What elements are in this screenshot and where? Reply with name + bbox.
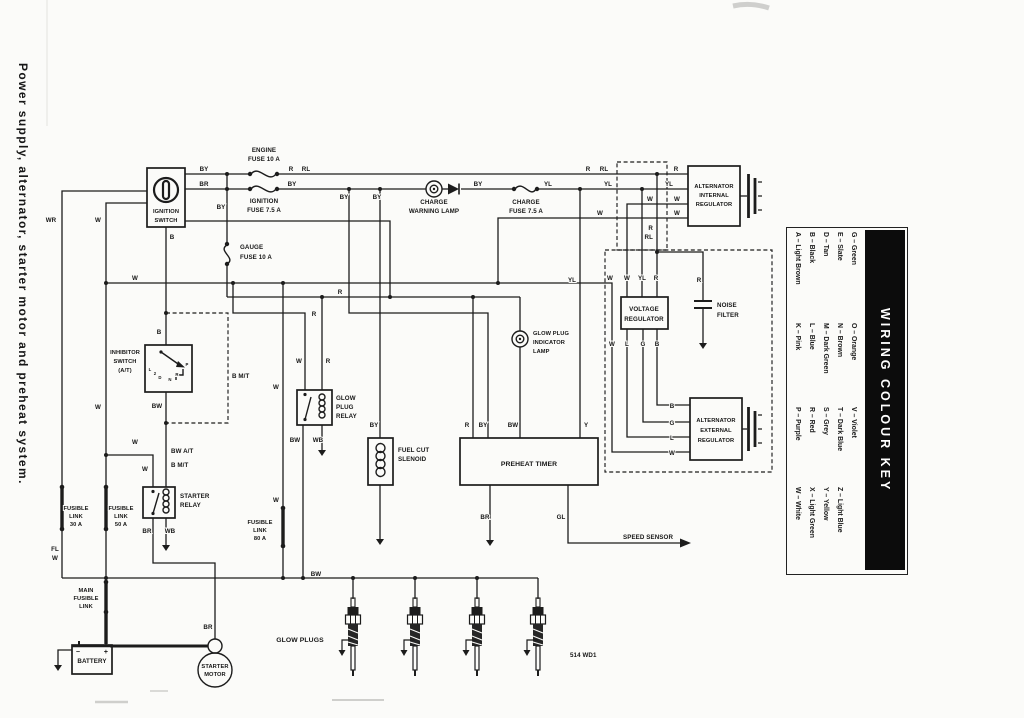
wire-label: RL [302, 166, 311, 173]
wire-label: B [655, 341, 660, 348]
wire-label: BW [290, 437, 301, 444]
starter-relay-internals [151, 489, 169, 515]
wire-label: YL [544, 181, 552, 188]
diagram-code: 514 WD1 [570, 652, 597, 659]
wire-label: W [95, 404, 101, 411]
colour-key-entry: O – Orange [846, 323, 860, 404]
gear-position: P [186, 362, 189, 367]
wire-label: W [142, 466, 148, 473]
wire-label: W [607, 275, 613, 282]
label-inhibitor-switch: (A/T) [118, 368, 131, 374]
wire-label: W [52, 555, 58, 562]
alternator-icon-external [749, 407, 763, 451]
colour-key-entry: E – Slate [832, 232, 846, 320]
gear-position: D [158, 375, 161, 380]
wire-label: B M/T [171, 462, 188, 469]
label-fusible-link-30: FUSIBLE [63, 506, 88, 512]
wire-label: R [697, 277, 702, 284]
wire-label: W [132, 439, 138, 446]
label-starter-motor: STARTER [201, 664, 228, 670]
glow-plugs-group [339, 578, 546, 676]
wire-label: B M/T [232, 373, 249, 380]
label-fusible-link-50: 50 A [115, 522, 127, 528]
wire-label: R [648, 225, 653, 232]
glow-plug [463, 578, 485, 676]
label-glow-plugs: GLOW PLUGS [276, 637, 324, 644]
alternator-icon-internal [749, 174, 763, 218]
wire-label: W [674, 210, 680, 217]
label-preheat-timer: PREHEAT TIMER [501, 461, 557, 468]
label-ignition-switch: SWITCH [154, 218, 177, 224]
wire-label: W [669, 450, 675, 457]
label-ignition-fuse: IGNITION [250, 198, 279, 205]
label-voltage-regulator: REGULATOR [624, 316, 664, 323]
colour-key-entry: W – White [790, 487, 804, 573]
colour-key-entry: D – Tan [818, 232, 832, 320]
scanned-wiring-diagram-page: Power supply, alternator, starter motor … [0, 0, 1024, 718]
wire-label: BY [340, 194, 350, 201]
gear-position: L [149, 367, 152, 372]
wire-label: BY [479, 422, 489, 429]
label-engine-fuse: FUSE 10 A [248, 156, 280, 163]
wire-label: W [296, 358, 302, 365]
label-fusible-link-30: 30 A [70, 522, 82, 528]
wire-label: W [647, 196, 653, 203]
battery-minus: − [76, 649, 80, 656]
colour-key-entry: L – Blue [804, 323, 818, 404]
label-glow-plug-relay: GLOW [336, 395, 356, 402]
wire-label: R [465, 422, 470, 429]
label-alt-int-reg: REGULATOR [696, 202, 732, 208]
wire-label: BW [508, 422, 519, 429]
wire-label: B [670, 403, 675, 410]
label-fusible-link-50: FUSIBLE [108, 506, 133, 512]
glow-plug-indicator-lamp-icon [512, 331, 528, 347]
label-glow-plug-indicator-lamp: LAMP [533, 349, 550, 355]
wire-label: Y [584, 422, 589, 429]
inhibitor-switch-internals [159, 350, 185, 380]
wire-label: BW [152, 403, 163, 410]
colour-key-entry: N – Brown [832, 323, 846, 404]
wire-label: W [624, 275, 630, 282]
colour-key-entry: K – Pink [790, 323, 804, 404]
wire-label: R [326, 358, 331, 365]
gear-position: N [168, 377, 171, 382]
label-alt-ext-reg: ALTERNATOR [696, 418, 735, 424]
glow-plug-relay [297, 390, 332, 425]
regulator-dashed-box [605, 250, 772, 472]
label-glow-plug-relay: RELAY [336, 413, 358, 420]
wire-label: W [132, 275, 138, 282]
label-main-fusible-link: MAIN [79, 588, 94, 594]
fuel-cut-solenoid [368, 438, 393, 485]
glow-plug [339, 578, 361, 676]
wire-label: GL [557, 514, 566, 521]
fuel-cut-solenoid-coil [376, 444, 385, 477]
colour-key-title-bar: WIRING COLOUR KEY [865, 230, 905, 570]
glow-plug [401, 578, 423, 676]
label-glow-plug-relay: PLUG [336, 404, 354, 411]
label-gauge-fuse: FUSE 10 A [240, 254, 272, 261]
label-inhibitor-switch: INHIBITOR [110, 350, 140, 356]
label-fusible-link-50: LINK [114, 514, 128, 520]
wire-label: W [273, 497, 279, 504]
colour-key-entry: T – Dark Blue [832, 407, 846, 484]
label-glow-plug-indicator-lamp: INDICATOR [533, 340, 565, 346]
wire-label: BR [480, 514, 490, 521]
glow-plug [524, 578, 546, 676]
wire-label: FL [51, 546, 59, 553]
wire-label: BY [370, 422, 380, 429]
battery-plus: + [104, 649, 108, 656]
wire-label: BW A/T [171, 448, 193, 455]
colour-key-entry: S – Grey [818, 407, 832, 484]
label-charge-warning-lamp: CHARGE [420, 199, 447, 206]
charge-warning-lamp-icon [426, 181, 442, 197]
label-alt-ext-reg: EXTERNAL [700, 428, 732, 434]
wire-label: B [157, 329, 162, 336]
wire-label: BY [373, 194, 383, 201]
colour-key-entry: R – Red [804, 407, 818, 484]
label-fusible-link-80: FUSIBLE [247, 520, 272, 526]
wire-label: W [273, 384, 279, 391]
wire-label: WB [313, 437, 324, 444]
label-charge-fuse: CHARGE [512, 199, 539, 206]
label-alt-int-reg: ALTERNATOR [694, 184, 733, 190]
glow-plug-relay-internals [303, 393, 325, 421]
label-fusible-link-80: LINK [253, 528, 267, 534]
label-charge-fuse: FUSE 7.5 A [509, 208, 543, 215]
wire-label: BR [142, 528, 152, 535]
label-alt-int-reg: INTERNAL [699, 193, 729, 199]
colour-key-entry: Y – Yellow [818, 487, 832, 573]
wire-label: BY [288, 181, 298, 188]
label-fuel-cut-solenoid: SLENOID [398, 456, 427, 463]
colour-key-entry: M – Dark Green [818, 323, 832, 404]
wire-runs [58, 174, 747, 660]
wire-label: R [674, 166, 679, 173]
label-fuel-cut-solenoid: FUEL CUT [398, 447, 429, 454]
label-fusible-link-80: 80 A [254, 536, 266, 542]
wire-label: BY [474, 181, 484, 188]
wire-label: YL [568, 277, 576, 284]
label-starter-relay: STARTER [180, 493, 210, 500]
wire-labels: BY R RL R RL R BR BY BY YL YL YL BY BY B… [46, 166, 702, 631]
wire-label: L [670, 435, 674, 442]
gear-position: 2 [154, 371, 157, 376]
wire-label: R [586, 166, 591, 173]
label-speed-sensor: SPEED SENSOR [623, 534, 673, 541]
label-ignition-fuse: FUSE 7.5 A [247, 207, 281, 214]
label-voltage-regulator: VOLTAGE [629, 306, 659, 313]
colour-key-entry: P – Purple [790, 407, 804, 484]
colour-key-entry: X – Light Green [804, 487, 818, 573]
label-alt-ext-reg: REGULATOR [698, 438, 734, 444]
label-starter-motor: MOTOR [204, 672, 226, 678]
wire-label: G [641, 341, 646, 348]
voltage-regulator [621, 297, 668, 329]
wiring-colour-key: A – Light BrownK – PinkP – PurpleW – Whi… [786, 227, 908, 575]
label-main-fusible-link: LINK [79, 604, 93, 610]
noise-filter-capacitor-icon [694, 301, 712, 308]
wire-label: W [674, 196, 680, 203]
wire-label: BW [311, 571, 322, 578]
label-noise-filter: FILTER [717, 312, 739, 319]
label-inhibitor-switch: SWITCH [113, 359, 136, 365]
wire-label: BY [217, 204, 227, 211]
label-noise-filter: NOISE [717, 302, 737, 309]
label-starter-relay: RELAY [180, 502, 202, 509]
scan-artifacts [47, 0, 769, 702]
colour-key-entry: Z – Light Blue [832, 487, 846, 573]
wire-label: WR [46, 217, 57, 224]
diode-icon [448, 184, 459, 195]
wire-label: R [654, 275, 659, 282]
label-fusible-link-30: LINK [69, 514, 83, 520]
label-charge-warning-lamp: WARNING LAMP [409, 208, 459, 215]
junction-dots [60, 172, 659, 615]
inhibitor-switch [145, 345, 192, 392]
wire-label: R [312, 311, 317, 318]
wire-label: WB [165, 528, 176, 535]
colour-key-entry: B – Black [804, 232, 818, 320]
wire-label: R [338, 289, 343, 296]
speed-sensor-arrow [680, 539, 691, 548]
wire-label: L [625, 341, 629, 348]
wire-label: YL [638, 275, 646, 282]
wire-label: BY [200, 166, 210, 173]
colour-key-entry: V – Violet [846, 407, 860, 484]
starter-relay [143, 487, 175, 518]
label-battery: BATTERY [77, 658, 107, 665]
wire-label: RL [600, 166, 609, 173]
label-ignition-switch: IGNITION [153, 209, 179, 215]
wire-label: YL [604, 181, 612, 188]
wire-label: BR [203, 624, 213, 631]
wire-label: W [609, 341, 615, 348]
wire-label: RL [645, 234, 654, 241]
colour-key-entry: G – Green [846, 232, 860, 320]
wire-label: R [289, 166, 294, 173]
label-main-fusible-link: FUSIBLE [73, 596, 98, 602]
label-glow-plug-indicator-lamp: GLOW PLUG [533, 331, 569, 337]
wire-label: W [597, 210, 603, 217]
wire-label: B [170, 234, 175, 241]
colour-key-title: WIRING COLOUR KEY [878, 308, 892, 492]
wire-label: YL [665, 181, 673, 188]
colour-key-entry: A – Light Brown [790, 232, 804, 320]
label-gauge-fuse: GAUGE [240, 244, 263, 251]
label-engine-fuse: ENGINE [252, 147, 276, 154]
wire-label: G [670, 420, 675, 427]
wire-label: W [95, 217, 101, 224]
wire-label: BR [199, 181, 209, 188]
